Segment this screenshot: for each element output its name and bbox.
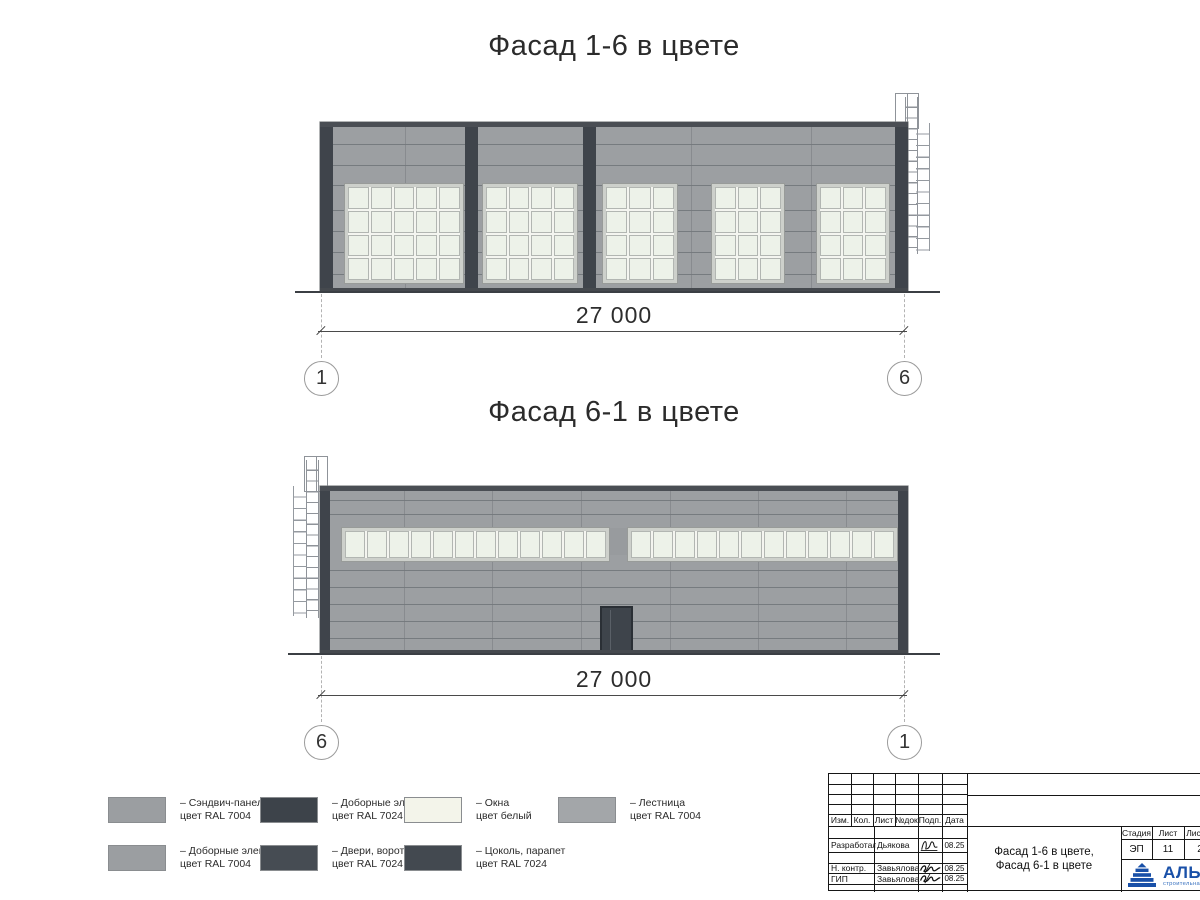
- window-pane: [486, 211, 507, 233]
- legend-item: – Окнацвет белый: [404, 797, 532, 823]
- intermediate-column: [465, 122, 478, 292]
- legend-item: – Цоколь, парапетцвет RAL 7024: [404, 845, 565, 871]
- tb-col-kol: Кол.: [851, 814, 873, 826]
- axis-marker: 1: [304, 361, 339, 396]
- sheet-value: 11: [1152, 839, 1184, 859]
- stage-label: Стадия: [1121, 826, 1152, 839]
- panel-joint: [320, 587, 908, 588]
- legend-label: – Лестницацвет RAL 7004: [630, 797, 701, 822]
- drawing-sheet: Фасад 1-6 в цвете Фасад 6-1 в цвете 27 0…: [0, 0, 1200, 900]
- ladder-rails: [306, 460, 319, 618]
- tb-date: 08.25: [942, 863, 967, 873]
- window-pane: [520, 531, 540, 558]
- tb-name: Дьякова: [875, 838, 920, 852]
- window-pane: [629, 235, 650, 257]
- signature: [918, 836, 942, 853]
- ground-line: [288, 653, 940, 655]
- tb-role: Разработал: [829, 838, 876, 852]
- window-pane: [865, 258, 886, 280]
- axis-marker: 1: [887, 725, 922, 760]
- window-pane: [348, 235, 369, 257]
- window-pane: [874, 531, 894, 558]
- window-pane: [653, 531, 673, 558]
- window-pane: [416, 187, 437, 209]
- window-pane: [760, 211, 781, 233]
- window-pane: [394, 187, 415, 209]
- window-pane: [394, 258, 415, 280]
- sheet-label: Лист: [1152, 826, 1184, 839]
- window-pane: [760, 235, 781, 257]
- window-pane: [738, 187, 759, 209]
- window-pane: [606, 211, 627, 233]
- window-pane: [416, 235, 437, 257]
- tb-col-data: Дата: [942, 814, 967, 826]
- window-pane: [394, 235, 415, 257]
- window-pane: [348, 187, 369, 209]
- window-pane: [509, 211, 530, 233]
- window-pane: [852, 531, 872, 558]
- logo-pyramid-icon: [1127, 863, 1157, 889]
- window-pane: [715, 258, 736, 280]
- window-pane: [760, 258, 781, 280]
- parapet: [320, 122, 908, 127]
- window-pane: [820, 235, 841, 257]
- window-pane: [606, 258, 627, 280]
- intermediate-column: [583, 122, 596, 292]
- dimension-line: [318, 331, 907, 332]
- window-pane: [653, 187, 674, 209]
- window-pane: [371, 258, 392, 280]
- window: [712, 184, 784, 283]
- panel-seam: [581, 486, 582, 654]
- tb-col-list: Лист: [873, 814, 895, 826]
- window-pane: [606, 235, 627, 257]
- window-pane: [531, 235, 552, 257]
- window-pane: [631, 531, 651, 558]
- window-pane: [764, 531, 784, 558]
- window-pane: [830, 531, 850, 558]
- window-pane: [586, 531, 606, 558]
- panel-seam: [758, 486, 759, 654]
- window: [345, 184, 463, 283]
- window-pane: [348, 258, 369, 280]
- legend-swatch: [108, 845, 166, 871]
- window-pane: [653, 258, 674, 280]
- window-pane: [486, 258, 507, 280]
- window-pane: [629, 258, 650, 280]
- corner-column: [320, 122, 333, 292]
- dimension-line: [318, 695, 907, 696]
- window-pane: [439, 187, 460, 209]
- axis-marker: 6: [887, 361, 922, 396]
- tb-role: ГИП: [829, 873, 876, 884]
- legend-label: – Двери, воротацвет RAL 7024: [332, 845, 410, 870]
- window-pane: [738, 235, 759, 257]
- strip-window: [342, 528, 609, 561]
- legend-label: – Окнацвет белый: [476, 797, 532, 822]
- sheets-value: 2: [1184, 839, 1200, 859]
- window-pane: [371, 235, 392, 257]
- legend-swatch: [404, 797, 462, 823]
- window-pane: [509, 235, 530, 257]
- window-pane: [719, 531, 739, 558]
- panel-seam: [846, 486, 847, 654]
- logo-subtext: строительная компания: [1163, 881, 1200, 887]
- window-pane: [348, 211, 369, 233]
- window-pane: [865, 211, 886, 233]
- window-pane: [394, 211, 415, 233]
- tb-date: 08.25: [942, 873, 967, 884]
- panel-joint: [320, 144, 908, 145]
- legend-swatch: [558, 797, 616, 823]
- legend-label: – Сэндвич-панелицвет RAL 7004: [180, 797, 269, 822]
- window-pane: [371, 187, 392, 209]
- entrance-door: [600, 606, 633, 654]
- window-pane: [741, 531, 761, 558]
- window-pane: [367, 531, 387, 558]
- window-pane: [531, 187, 552, 209]
- company-logo: АЛЬЯНС строительная компания: [1127, 861, 1200, 890]
- window-pane: [738, 211, 759, 233]
- window-pane: [439, 211, 460, 233]
- window-pane: [629, 187, 650, 209]
- window-pane: [433, 531, 453, 558]
- window-pane: [554, 211, 575, 233]
- window-pane: [820, 258, 841, 280]
- document-title: Фасад 1-6 в цвете, Фасад 6-1 в цвете: [967, 826, 1121, 892]
- window-pane: [843, 187, 864, 209]
- tb-name: Завьялова: [875, 863, 920, 873]
- facade-1-6-title: Фасад 1-6 в цвете: [320, 30, 908, 63]
- legend-item: – Двери, воротацвет RAL 7024: [260, 845, 410, 871]
- window-pane: [498, 531, 518, 558]
- ladder-cage: [293, 486, 307, 616]
- legend-item: – Сэндвич-панелицвет RAL 7004: [108, 797, 269, 823]
- window-pane: [629, 211, 650, 233]
- window-pane: [554, 235, 575, 257]
- legend-label: – Цоколь, парапетцвет RAL 7024: [476, 845, 565, 870]
- window-pane: [531, 211, 552, 233]
- window-pane: [439, 258, 460, 280]
- window-pane: [820, 187, 841, 209]
- title-block: Изм. Кол. Лист №док Подп. Дата Разработа…: [828, 773, 1200, 891]
- window-pane: [786, 531, 806, 558]
- door-leaf-divider: [610, 610, 611, 650]
- tb-col-podp: Подп.: [918, 814, 942, 826]
- window-pane: [531, 258, 552, 280]
- panel-seam: [492, 486, 493, 654]
- panel-joint: [320, 514, 908, 515]
- window-pane: [554, 258, 575, 280]
- stage-value: ЭП: [1121, 839, 1152, 859]
- window-pane: [455, 531, 475, 558]
- window-pane: [564, 531, 584, 558]
- window-pane: [697, 531, 717, 558]
- window-pane: [345, 531, 365, 558]
- window-pane: [486, 235, 507, 257]
- legend-item: – Лестницацвет RAL 7004: [558, 797, 701, 823]
- panel-joint: [320, 500, 908, 501]
- window: [817, 184, 889, 283]
- legend-swatch: [260, 797, 318, 823]
- window-pane: [416, 211, 437, 233]
- facade-6-1-drawing: [320, 486, 908, 654]
- panel-seam: [811, 122, 812, 292]
- window-pane: [476, 531, 496, 558]
- tb-col-izm: Изм.: [829, 814, 851, 826]
- window-pane: [843, 258, 864, 280]
- window-pane: [820, 211, 841, 233]
- window-pane: [760, 187, 781, 209]
- tb-col-ndok: №док: [895, 814, 918, 826]
- legend-swatch: [108, 797, 166, 823]
- sheets-label: Листов: [1184, 826, 1200, 839]
- ladder-cage: [916, 123, 930, 251]
- window-pane: [843, 235, 864, 257]
- window-pane: [715, 235, 736, 257]
- window-pane: [389, 531, 409, 558]
- panel-seam: [404, 486, 405, 654]
- window-pane: [808, 531, 828, 558]
- panel-joint: [320, 604, 908, 605]
- panel-joint: [320, 570, 908, 571]
- window-pane: [653, 211, 674, 233]
- window: [603, 184, 677, 283]
- window-pane: [738, 258, 759, 280]
- legend-swatch: [404, 845, 462, 871]
- window-pane: [865, 235, 886, 257]
- window-pane: [486, 187, 507, 209]
- window-pane: [653, 235, 674, 257]
- window-pane: [371, 211, 392, 233]
- window-pane: [411, 531, 431, 558]
- panel-joint: [320, 165, 908, 166]
- window-pane: [715, 187, 736, 209]
- tb-date: 08.25: [942, 838, 967, 852]
- window-pane: [715, 211, 736, 233]
- ground-line: [295, 291, 940, 293]
- signature: [918, 872, 942, 884]
- facade-1-6-drawing: [320, 122, 908, 292]
- window-pane: [843, 211, 864, 233]
- legend-swatch: [260, 845, 318, 871]
- axis-marker: 6: [304, 725, 339, 760]
- logo-text: АЛЬЯНС: [1163, 865, 1200, 881]
- window-pane: [554, 187, 575, 209]
- corner-column: [320, 486, 330, 654]
- dimension-text: 27 000: [320, 302, 908, 329]
- window: [483, 184, 577, 283]
- corner-column: [898, 486, 908, 654]
- window-pane: [439, 235, 460, 257]
- window-pane: [675, 531, 695, 558]
- tb-name: Завьялова: [875, 873, 920, 884]
- window-pane: [865, 187, 886, 209]
- window-pane: [509, 187, 530, 209]
- dimension-text: 27 000: [320, 666, 908, 693]
- window-pane: [542, 531, 562, 558]
- corner-column: [895, 122, 908, 292]
- parapet: [320, 486, 908, 491]
- panel-seam: [691, 122, 692, 292]
- facade-6-1-title: Фасад 6-1 в цвете: [320, 396, 908, 429]
- panel-seam: [670, 486, 671, 654]
- window-pane: [416, 258, 437, 280]
- window-pane: [509, 258, 530, 280]
- window-pane: [606, 187, 627, 209]
- tb-role: Н. контр.: [829, 863, 876, 873]
- strip-window: [628, 528, 897, 561]
